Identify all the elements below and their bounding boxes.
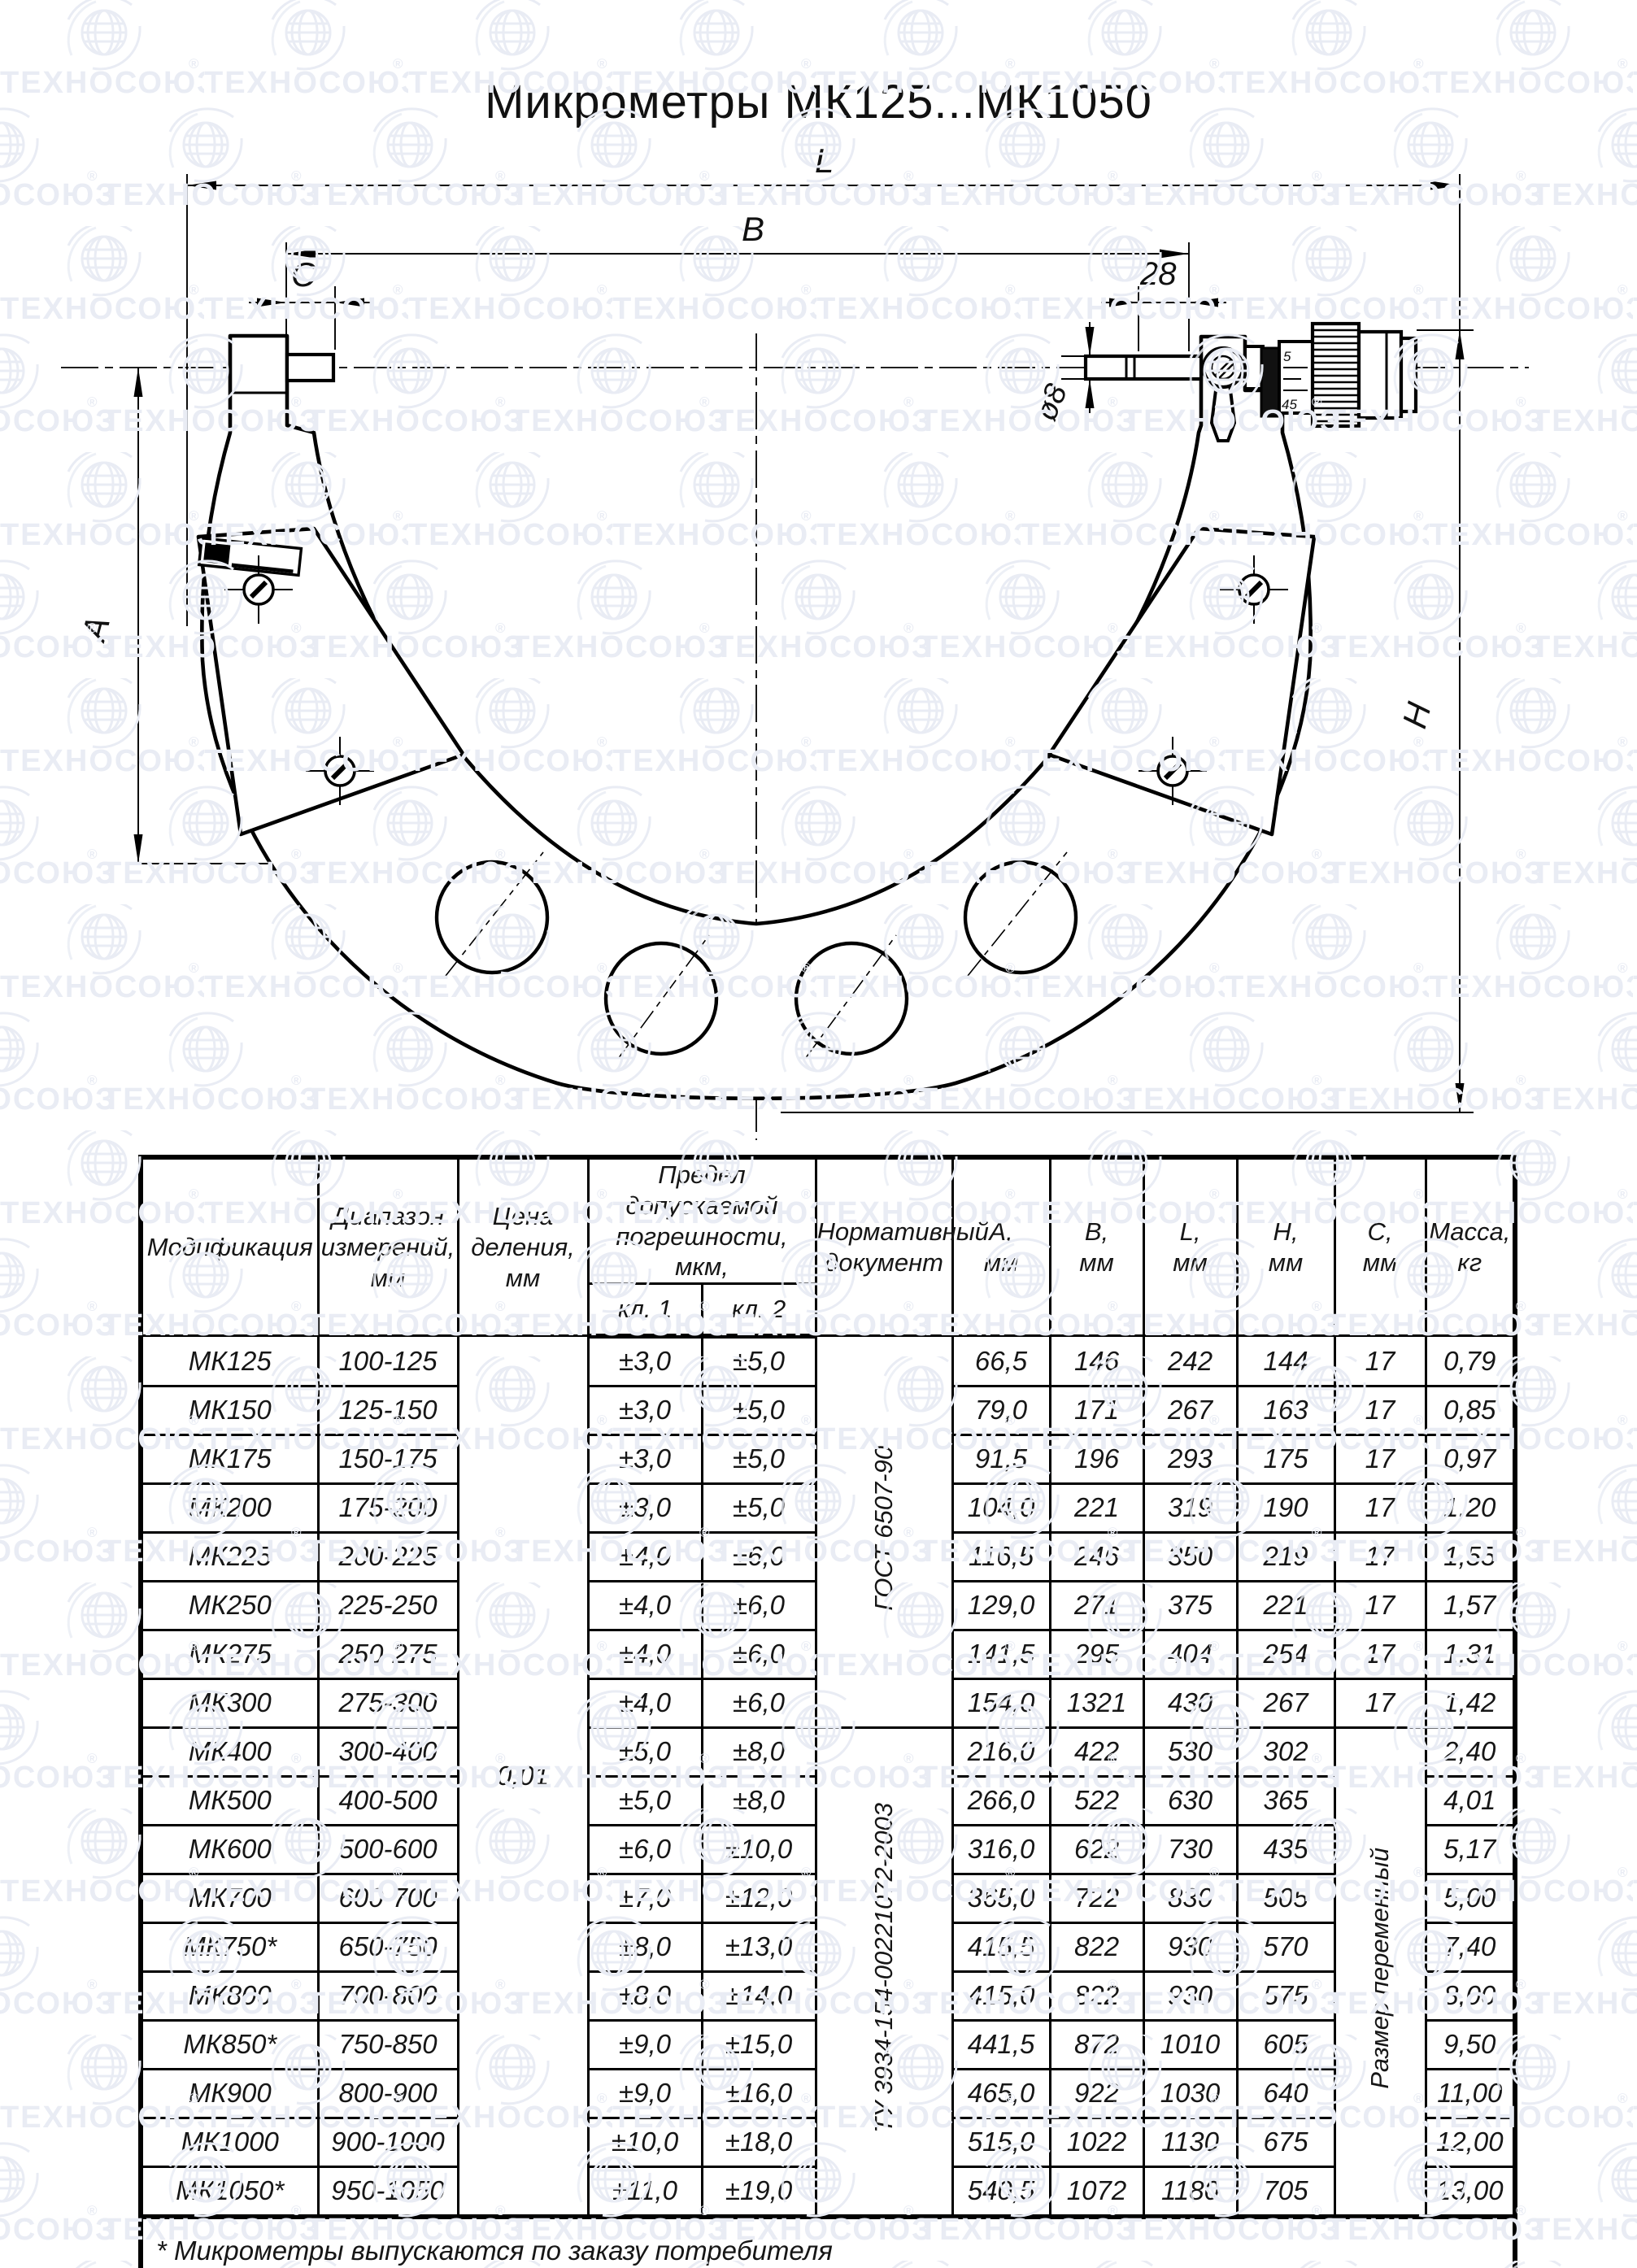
cell-class1: ±6,0 bbox=[588, 1825, 702, 1874]
cell-class2: ±18,0 bbox=[702, 2118, 816, 2166]
cell-a: 465,0 bbox=[952, 2069, 1050, 2118]
cell-mass: 0,97 bbox=[1426, 1434, 1515, 1483]
cell-class1: ±3,0 bbox=[588, 1386, 702, 1434]
cell-range: 900-1000 bbox=[318, 2118, 458, 2166]
cell-class2: ±14,0 bbox=[702, 1971, 816, 2020]
cell-range: 200-225 bbox=[318, 1532, 458, 1581]
cell-range: 800-900 bbox=[318, 2069, 458, 2118]
header-col-h: Н, мм bbox=[1237, 1157, 1334, 1336]
cell-model: МК150 bbox=[141, 1386, 318, 1434]
cell-range: 750-850 bbox=[318, 2020, 458, 2069]
cell-class2: ±8,0 bbox=[702, 1727, 816, 1776]
cell-range: 400-500 bbox=[318, 1776, 458, 1825]
dim-L-label: L bbox=[815, 141, 834, 180]
cell-b: 722 bbox=[1050, 1874, 1143, 1922]
cell-class2: ±12,0 bbox=[702, 1874, 816, 1922]
cell-l: 530 bbox=[1143, 1727, 1237, 1776]
cell-model: МК275 bbox=[141, 1630, 318, 1678]
cell-mass: 0,79 bbox=[1426, 1336, 1515, 1386]
cell-c: 17 bbox=[1334, 1483, 1426, 1532]
cell-a: 266,0 bbox=[952, 1776, 1050, 1825]
cell-h: 144 bbox=[1237, 1336, 1334, 1386]
cell-class2: ±5,0 bbox=[702, 1336, 816, 1386]
cell-h: 254 bbox=[1237, 1630, 1334, 1678]
cell-a: 79,0 bbox=[952, 1386, 1050, 1434]
cell-mass: 12,00 bbox=[1426, 2118, 1515, 2166]
cell-c: 17 bbox=[1334, 1336, 1426, 1386]
dim-B-label: B bbox=[742, 210, 764, 248]
cell-h: 221 bbox=[1237, 1581, 1334, 1630]
cell-model: МК700 bbox=[141, 1874, 318, 1922]
cell-range: 600-700 bbox=[318, 1874, 458, 1922]
sleeve-mark-top: 5 bbox=[1283, 349, 1291, 364]
header-col-a: А, мм bbox=[952, 1157, 1050, 1336]
cell-model: МК500 bbox=[141, 1776, 318, 1825]
cell-h: 365 bbox=[1237, 1776, 1334, 1825]
cell-a: 66,5 bbox=[952, 1336, 1050, 1386]
cell-b: 922 bbox=[1050, 2069, 1143, 2118]
cell-range: 250-275 bbox=[318, 1630, 458, 1678]
cell-class1: ±5,0 bbox=[588, 1776, 702, 1825]
cell-mass: 4,01 bbox=[1426, 1776, 1515, 1825]
cell-class1: ±10,0 bbox=[588, 2118, 702, 2166]
cell-mass: 0,85 bbox=[1426, 1386, 1515, 1434]
division-value-cell: 0,01 bbox=[458, 1336, 588, 2217]
cell-class1: ±7,0 bbox=[588, 1874, 702, 1922]
cell-l: 1030 bbox=[1143, 2069, 1237, 2118]
cell-h: 190 bbox=[1237, 1483, 1334, 1532]
cell-h: 219 bbox=[1237, 1532, 1334, 1581]
cell-b: 271 bbox=[1050, 1581, 1143, 1630]
cell-class1: ±8,0 bbox=[588, 1922, 702, 1971]
cell-b: 1072 bbox=[1050, 2166, 1143, 2217]
table-footnote: * Микрометры выпускаются по заказу потре… bbox=[141, 2217, 1515, 2268]
cell-class2: ±6,0 bbox=[702, 1630, 816, 1678]
cell-a: 540,5 bbox=[952, 2166, 1050, 2217]
cell-mass: 1,55 bbox=[1426, 1532, 1515, 1581]
dim-28-label: 28 bbox=[1139, 256, 1177, 292]
cell-a: 365,0 bbox=[952, 1874, 1050, 1922]
cell-h: 267 bbox=[1237, 1678, 1334, 1727]
cell-range: 300-400 bbox=[318, 1727, 458, 1776]
cell-class1: ±5,0 bbox=[588, 1727, 702, 1776]
cell-c: 17 bbox=[1334, 1532, 1426, 1581]
cell-l: 630 bbox=[1143, 1776, 1237, 1825]
cell-b: 822 bbox=[1050, 1971, 1143, 2020]
cell-model: МК750* bbox=[141, 1922, 318, 1971]
cell-class1: ±4,0 bbox=[588, 1581, 702, 1630]
header-class1: кл. 1 bbox=[588, 1284, 702, 1336]
cell-model: МК250 bbox=[141, 1581, 318, 1630]
document-tu-cell: ТУ 3934-154-00221072-2003 bbox=[816, 1727, 952, 2217]
cell-model: МК400 bbox=[141, 1727, 318, 1776]
cell-b: 295 bbox=[1050, 1630, 1143, 1678]
dim-C-label: C bbox=[291, 255, 316, 294]
cell-l: 267 bbox=[1143, 1386, 1237, 1434]
cell-l: 375 bbox=[1143, 1581, 1237, 1630]
header-modification: Модификация bbox=[141, 1157, 318, 1336]
header-range: Диапазон измерений, мм bbox=[318, 1157, 458, 1336]
table-row: МК400300-400±5,0±8,0ТУ 3934-154-00221072… bbox=[141, 1727, 1515, 1776]
cell-class2: ±6,0 bbox=[702, 1678, 816, 1727]
cell-a: 441,5 bbox=[952, 2020, 1050, 2069]
cell-range: 650-750 bbox=[318, 1922, 458, 1971]
cell-l: 1010 bbox=[1143, 2020, 1237, 2069]
cell-mass: 1,20 bbox=[1426, 1483, 1515, 1532]
cell-b: 1022 bbox=[1050, 2118, 1143, 2166]
cell-h: 302 bbox=[1237, 1727, 1334, 1776]
cell-model: МК125 bbox=[141, 1336, 318, 1386]
cell-b: 196 bbox=[1050, 1434, 1143, 1483]
cell-model: МК850* bbox=[141, 2020, 318, 2069]
cell-b: 622 bbox=[1050, 1825, 1143, 1874]
cell-b: 822 bbox=[1050, 1922, 1143, 1971]
spindle bbox=[1086, 356, 1201, 379]
cell-mass: 11,00 bbox=[1426, 2069, 1515, 2118]
document-gost-cell: ГОСТ 6507-90 bbox=[816, 1336, 952, 1728]
cell-b: 422 bbox=[1050, 1727, 1143, 1776]
dim-H-label: H bbox=[1395, 698, 1438, 732]
cell-model: МК900 bbox=[141, 2069, 318, 2118]
cell-model: МК300 bbox=[141, 1678, 318, 1727]
anvil bbox=[287, 355, 333, 381]
cell-mass: 5,00 bbox=[1426, 1874, 1515, 1922]
header-col-c: С, мм bbox=[1334, 1157, 1426, 1336]
dim-dia8-label: ø8 bbox=[1029, 380, 1074, 426]
cell-mass: 8,00 bbox=[1426, 1971, 1515, 2020]
cell-a: 316,0 bbox=[952, 1825, 1050, 1874]
cell-class2: ±5,0 bbox=[702, 1483, 816, 1532]
cell-class1: ±3,0 bbox=[588, 1483, 702, 1532]
cell-b: 171 bbox=[1050, 1386, 1143, 1434]
cell-b: 246 bbox=[1050, 1532, 1143, 1581]
cell-mass: 1,57 bbox=[1426, 1581, 1515, 1630]
cell-mass: 1,42 bbox=[1426, 1678, 1515, 1727]
cell-class1: ±8,0 bbox=[588, 1971, 702, 2020]
cell-l: 1180 bbox=[1143, 2166, 1237, 2217]
micrometer-head: 5 45 bbox=[1245, 324, 1416, 426]
cell-model: МК1050* bbox=[141, 2166, 318, 2217]
cell-range: 500-600 bbox=[318, 1825, 458, 1874]
cell-class1: ±3,0 bbox=[588, 1434, 702, 1483]
cell-b: 522 bbox=[1050, 1776, 1143, 1825]
cell-range: 125-150 bbox=[318, 1386, 458, 1434]
header-document: Нормативный документ bbox=[816, 1157, 952, 1336]
cell-class2: ±6,0 bbox=[702, 1532, 816, 1581]
cell-model: МК800 bbox=[141, 1971, 318, 2020]
cell-c: 17 bbox=[1334, 1386, 1426, 1434]
cell-l: 242 bbox=[1143, 1336, 1237, 1386]
header-col-l: L, мм bbox=[1143, 1157, 1237, 1336]
cell-l: 930 bbox=[1143, 1922, 1237, 1971]
cell-model: МК1000 bbox=[141, 2118, 318, 2166]
cell-h: 435 bbox=[1237, 1825, 1334, 1874]
cell-a: 116,5 bbox=[952, 1532, 1050, 1581]
cell-range: 225-250 bbox=[318, 1581, 458, 1630]
cell-mass: 13,00 bbox=[1426, 2166, 1515, 2217]
cell-mass: 1,31 bbox=[1426, 1630, 1515, 1678]
cell-b: 146 bbox=[1050, 1336, 1143, 1386]
cell-model: МК600 bbox=[141, 1825, 318, 1874]
cell-l: 319 bbox=[1143, 1483, 1237, 1532]
cell-h: 605 bbox=[1237, 2020, 1334, 2069]
cell-l: 1130 bbox=[1143, 2118, 1237, 2166]
cell-h: 640 bbox=[1237, 2069, 1334, 2118]
cell-a: 216,0 bbox=[952, 1727, 1050, 1776]
cell-class2: ±16,0 bbox=[702, 2069, 816, 2118]
cell-h: 175 bbox=[1237, 1434, 1334, 1483]
cell-class1: ±4,0 bbox=[588, 1532, 702, 1581]
cell-range: 150-175 bbox=[318, 1434, 458, 1483]
cell-l: 350 bbox=[1143, 1532, 1237, 1581]
cell-a: 515,0 bbox=[952, 2118, 1050, 2166]
cell-l: 430 bbox=[1143, 1678, 1237, 1727]
cell-l: 293 bbox=[1143, 1434, 1237, 1483]
cell-class2: ±15,0 bbox=[702, 2020, 816, 2069]
cell-a: 415,5 bbox=[952, 1922, 1050, 1971]
cell-class2: ±19,0 bbox=[702, 2166, 816, 2217]
cell-l: 404 bbox=[1143, 1630, 1237, 1678]
cell-mass: 2,40 bbox=[1426, 1727, 1515, 1776]
cell-h: 575 bbox=[1237, 1971, 1334, 2020]
cell-c: 17 bbox=[1334, 1630, 1426, 1678]
cell-class2: ±13,0 bbox=[702, 1922, 816, 1971]
cell-class2: ±5,0 bbox=[702, 1434, 816, 1483]
cell-c: 17 bbox=[1334, 1678, 1426, 1727]
cell-b: 1321 bbox=[1050, 1678, 1143, 1727]
cell-mass: 5,17 bbox=[1426, 1825, 1515, 1874]
cell-class1: ±4,0 bbox=[588, 1678, 702, 1727]
cell-mass: 9,50 bbox=[1426, 2020, 1515, 2069]
cell-range: 950-1050 bbox=[318, 2166, 458, 2217]
cell-h: 675 bbox=[1237, 2118, 1334, 2166]
knurling bbox=[1313, 330, 1359, 421]
header-division: Цена деления, мм bbox=[458, 1157, 588, 1336]
cell-a: 141,5 bbox=[952, 1630, 1050, 1678]
cell-class1: ±11,0 bbox=[588, 2166, 702, 2217]
sleeve-mark-bottom: 45 bbox=[1282, 397, 1297, 412]
cell-class2: ±10,0 bbox=[702, 1825, 816, 1874]
cell-class2: ±6,0 bbox=[702, 1581, 816, 1630]
table-row: МК125100-1250,01±3,0±5,0ГОСТ 6507-9066,5… bbox=[141, 1336, 1515, 1386]
c-variable-cell-label: Размер переменный bbox=[1365, 1848, 1395, 2089]
cell-b: 221 bbox=[1050, 1483, 1143, 1532]
cell-class1: ±9,0 bbox=[588, 2020, 702, 2069]
cell-c: 17 bbox=[1334, 1581, 1426, 1630]
cell-a: 129,0 bbox=[952, 1581, 1050, 1630]
cell-b: 872 bbox=[1050, 2020, 1143, 2069]
cell-a: 104,0 bbox=[952, 1483, 1050, 1532]
cell-h: 505 bbox=[1237, 1874, 1334, 1922]
cell-model: МК225 bbox=[141, 1532, 318, 1581]
document-tu-cell-label: ТУ 3934-154-00221072-2003 bbox=[869, 1803, 899, 2133]
cell-h: 163 bbox=[1237, 1386, 1334, 1434]
cell-h: 705 bbox=[1237, 2166, 1334, 2217]
datasheet-page: 5 45 bbox=[0, 0, 1637, 2268]
micrometer-drawing: 5 45 bbox=[0, 0, 1637, 1151]
spec-table-body: МК125100-1250,01±3,0±5,0ГОСТ 6507-9066,5… bbox=[141, 1336, 1515, 2217]
spec-table: Модификация Диапазон измерений, мм Цена … bbox=[138, 1155, 1517, 2268]
cell-h: 570 bbox=[1237, 1922, 1334, 1971]
header-error-limit: Предел допускаемой погрешности, мкм, bbox=[588, 1157, 816, 1284]
cell-c: 17 bbox=[1334, 1434, 1426, 1483]
cell-mass: 7,40 bbox=[1426, 1922, 1515, 1971]
dim-A-label: A bbox=[74, 612, 117, 646]
cell-range: 275-300 bbox=[318, 1678, 458, 1727]
cell-class1: ±4,0 bbox=[588, 1630, 702, 1678]
cell-a: 91,5 bbox=[952, 1434, 1050, 1483]
cell-l: 930 bbox=[1143, 1971, 1237, 2020]
cell-l: 730 bbox=[1143, 1825, 1237, 1874]
cell-l: 830 bbox=[1143, 1874, 1237, 1922]
c-variable-cell: Размер переменный bbox=[1334, 1727, 1426, 2217]
cell-model: МК200 bbox=[141, 1483, 318, 1532]
cell-a: 154,0 bbox=[952, 1678, 1050, 1727]
header-class2: кл. 2 bbox=[702, 1284, 816, 1336]
cell-range: 700-800 bbox=[318, 1971, 458, 2020]
cell-class1: ±3,0 bbox=[588, 1336, 702, 1386]
cell-class1: ±9,0 bbox=[588, 2069, 702, 2118]
cell-a: 415,0 bbox=[952, 1971, 1050, 2020]
document-gost-cell-label: ГОСТ 6507-90 bbox=[869, 1446, 899, 1611]
cell-class2: ±5,0 bbox=[702, 1386, 816, 1434]
header-mass: Масса, кг bbox=[1426, 1157, 1515, 1336]
cell-range: 175-200 bbox=[318, 1483, 458, 1532]
header-col-b: В, мм bbox=[1050, 1157, 1143, 1336]
cell-model: МК175 bbox=[141, 1434, 318, 1483]
cell-class2: ±8,0 bbox=[702, 1776, 816, 1825]
cell-range: 100-125 bbox=[318, 1336, 458, 1386]
